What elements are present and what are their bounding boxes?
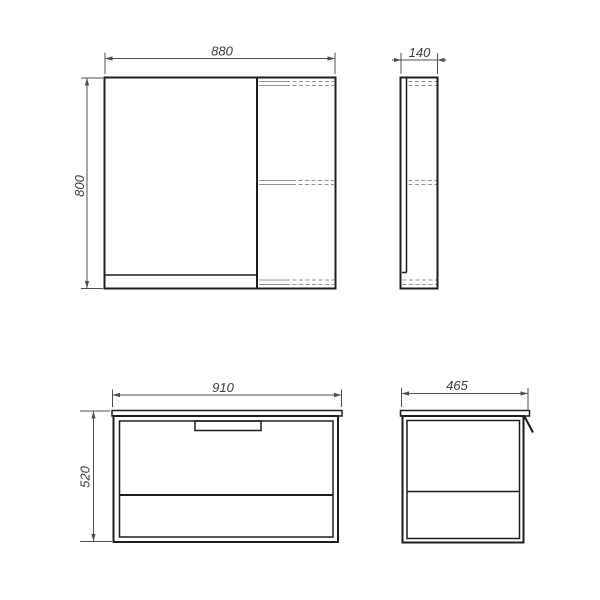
dimension-mirror-depth: 140: [392, 45, 447, 74]
dimension-label-800: 800: [72, 174, 87, 196]
countertop-edge-tick: [524, 416, 533, 433]
technical-drawing-canvas: 880 140 800 9: [0, 0, 600, 600]
arrowhead-left: [105, 56, 113, 60]
mirror-shelf-bottom: [259, 280, 334, 285]
arrowhead-right: [334, 393, 342, 397]
arrowhead-right: [328, 56, 336, 60]
dimension-mirror-width: 880: [105, 44, 335, 75]
mirror-shelf-middle: [259, 181, 334, 185]
dimension-vanity-depth: 465: [402, 378, 529, 411]
dimension-label-880: 880: [211, 44, 233, 59]
vanity-front-view: [112, 411, 342, 543]
vanity-side-inner-frame: [407, 421, 520, 539]
arrowhead-top: [85, 78, 89, 86]
arrowhead-left: [113, 393, 121, 397]
mirror-side-shelf-middle: [409, 181, 437, 185]
mirror-cabinet-body-outline: [105, 78, 336, 289]
drawer-handle-recess: [195, 421, 261, 431]
dimension-vanity-height: 520: [78, 411, 113, 542]
furniture-dimension-drawing: 880 140 800 9: [0, 0, 600, 600]
mirror-cabinet-side-view: [401, 78, 438, 289]
arrowhead-bottom: [91, 534, 95, 542]
arrowhead-top: [91, 411, 95, 419]
dimension-label-140: 140: [409, 45, 431, 60]
vanity-side-view: [401, 411, 534, 543]
arrowhead-bottom: [85, 281, 89, 289]
dimension-mirror-height: 800: [72, 78, 103, 289]
arrowhead-right: [438, 58, 445, 62]
dimension-label-910: 910: [212, 380, 234, 395]
vanity-body-outline: [114, 416, 339, 542]
arrowhead-left: [394, 58, 401, 62]
mirror-side-shelf-bottom: [403, 280, 437, 285]
arrowhead-left: [402, 391, 410, 395]
vanity-side-outline: [403, 416, 524, 543]
mirror-cabinet-front-view: [105, 78, 336, 289]
arrowhead-right: [521, 391, 529, 395]
drawer-front-frame: [120, 421, 334, 537]
mirror-side-shelf-top: [409, 82, 437, 86]
dimension-label-520: 520: [78, 465, 93, 487]
dimension-vanity-width: 910: [113, 380, 342, 407]
dimension-label-465: 465: [446, 378, 468, 393]
mirror-shelf-top: [259, 82, 334, 86]
